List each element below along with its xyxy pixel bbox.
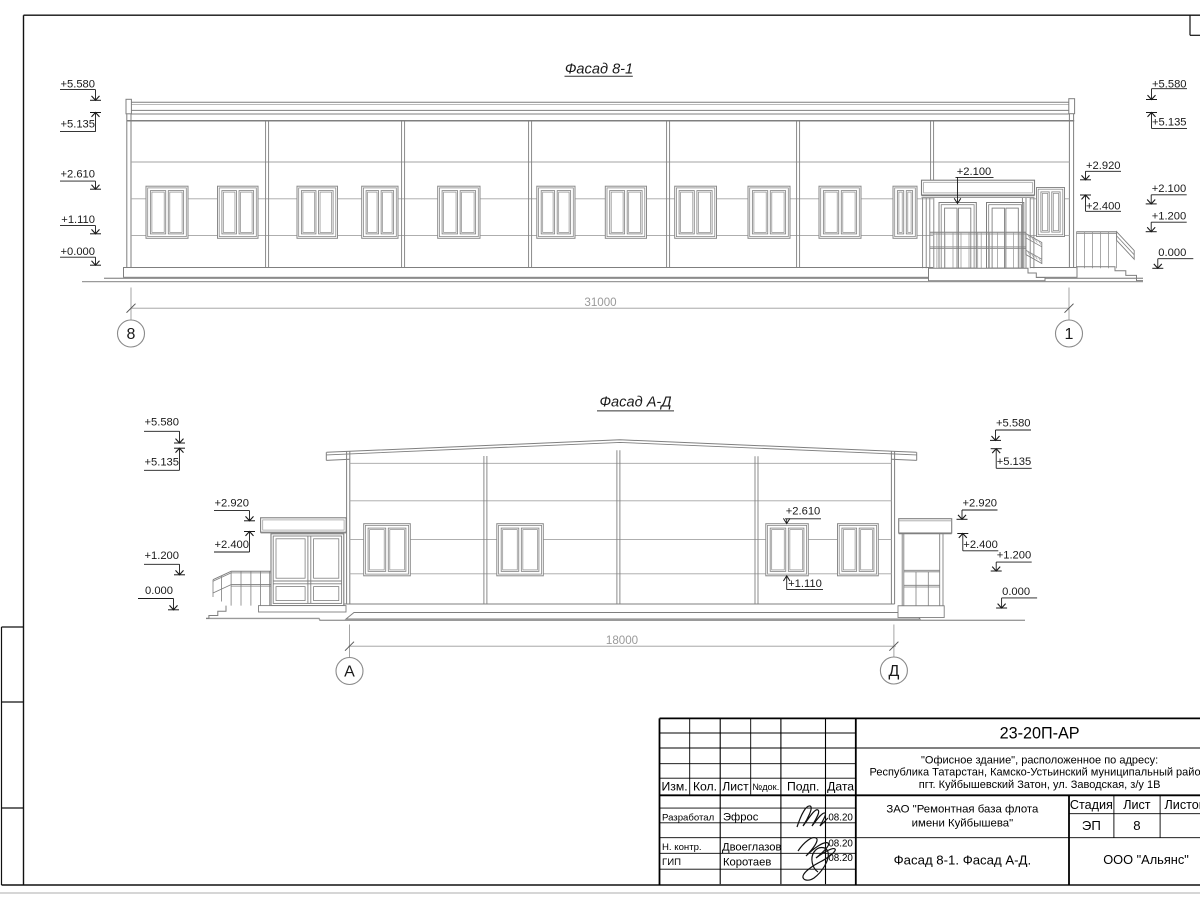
svg-text:+2.100: +2.100 xyxy=(1152,183,1187,195)
svg-text:31000: 31000 xyxy=(584,296,616,309)
svg-text:0.000: 0.000 xyxy=(1002,586,1030,598)
svg-text:№док.: №док. xyxy=(752,782,779,792)
svg-text:Подп.: Подп. xyxy=(787,779,819,793)
svg-text:+2.400: +2.400 xyxy=(963,539,998,551)
svg-text:0.000: 0.000 xyxy=(1158,247,1186,259)
svg-text:+2.400: +2.400 xyxy=(1086,200,1121,212)
svg-text:+2.920: +2.920 xyxy=(214,497,249,509)
svg-text:+5.135: +5.135 xyxy=(997,456,1032,468)
svg-text:0.000: 0.000 xyxy=(145,585,173,597)
svg-text:Разработал: Разработал xyxy=(662,812,714,823)
svg-text:+5.135: +5.135 xyxy=(60,119,95,131)
svg-text:Лист: Лист xyxy=(722,779,749,793)
svg-text:пгт. Куйбышевский Затон, ул. З: пгт. Куйбышевский Затон, ул. Заводская, … xyxy=(919,779,1161,791)
svg-text:+2.920: +2.920 xyxy=(1086,160,1121,172)
svg-text:+1.110: +1.110 xyxy=(788,578,822,590)
svg-text:Д: Д xyxy=(888,663,899,680)
svg-text:Листов: Листов xyxy=(1165,798,1200,812)
svg-text:8: 8 xyxy=(1133,818,1140,833)
svg-text:Двоеглазов: Двоеглазов xyxy=(722,842,782,854)
svg-text:+1.110: +1.110 xyxy=(61,214,95,226)
svg-text:08.20: 08.20 xyxy=(828,812,853,823)
svg-text:8: 8 xyxy=(127,326,136,343)
svg-text:Фасад 8-1: Фасад 8-1 xyxy=(565,62,633,78)
svg-text:+5.135: +5.135 xyxy=(144,456,179,468)
svg-text:+0.000: +0.000 xyxy=(60,246,95,258)
svg-text:08.20: 08.20 xyxy=(828,838,853,849)
svg-text:Стадия: Стадия xyxy=(1070,798,1113,812)
svg-text:ГИП: ГИП xyxy=(662,857,681,868)
svg-text:Коротаев: Коротаев xyxy=(723,856,771,868)
svg-text:+5.580: +5.580 xyxy=(996,417,1031,429)
svg-text:+5.135: +5.135 xyxy=(1152,117,1187,129)
svg-text:А: А xyxy=(344,664,355,681)
svg-text:Лист: Лист xyxy=(1123,798,1151,812)
svg-text:+5.580: +5.580 xyxy=(144,417,179,429)
svg-text:Изм.: Изм. xyxy=(662,779,688,793)
svg-text:23-20П-АР: 23-20П-АР xyxy=(1000,725,1080,743)
svg-text:Эфрос: Эфрос xyxy=(723,812,759,824)
svg-text:Фасад 8-1. Фасад А-Д.: Фасад 8-1. Фасад А-Д. xyxy=(894,852,1031,867)
svg-text:"Офисное здание", расположенно: "Офисное здание", расположенное по адрес… xyxy=(921,755,1158,767)
svg-text:ЗАО "Ремонтная база флота: ЗАО "Ремонтная база флота xyxy=(886,803,1039,815)
svg-text:ООО "Альянс": ООО "Альянс" xyxy=(1103,852,1189,867)
svg-text:1: 1 xyxy=(1065,326,1074,343)
svg-text:Фасад А-Д: Фасад А-Д xyxy=(599,395,671,411)
svg-text:имени Куйбышева": имени Куйбышева" xyxy=(912,817,1014,829)
svg-text:Н. контр.: Н. контр. xyxy=(662,842,702,853)
svg-text:+2.610: +2.610 xyxy=(60,169,95,181)
svg-text:18000: 18000 xyxy=(606,634,638,647)
svg-text:+2.610: +2.610 xyxy=(786,506,821,518)
svg-text:+1.200: +1.200 xyxy=(997,549,1032,561)
svg-text:ЭП: ЭП xyxy=(1082,818,1101,833)
svg-text:+1.200: +1.200 xyxy=(1152,211,1187,223)
svg-text:+2.400: +2.400 xyxy=(214,539,249,551)
svg-text:+1.200: +1.200 xyxy=(144,550,179,562)
svg-text:+5.580: +5.580 xyxy=(60,79,95,91)
svg-text:+2.920: +2.920 xyxy=(963,498,998,510)
svg-text:Дата: Дата xyxy=(827,779,854,793)
svg-text:+2.100: +2.100 xyxy=(957,166,992,178)
svg-text:Республика Татарстан, Камско-У: Республика Татарстан, Камско-Устьинский … xyxy=(869,766,1200,778)
svg-text:Кол.: Кол. xyxy=(693,779,717,793)
